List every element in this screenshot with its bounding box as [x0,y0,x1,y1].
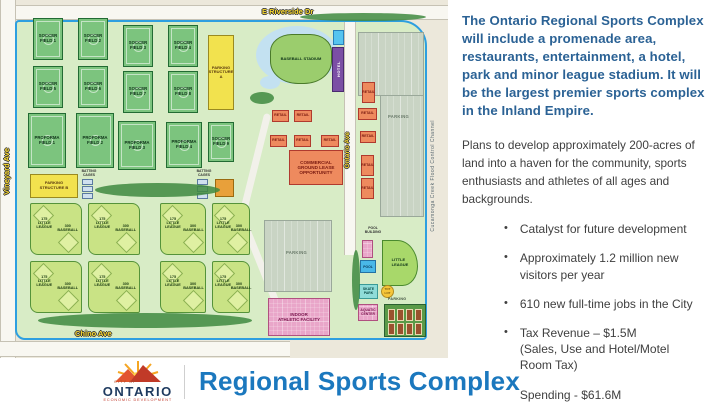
parking-label: PARKING [388,297,406,301]
retail-label: RETAIL [297,114,310,118]
little-league-baseball-block: 175 LITTLE LEAGUE300 BASEBALL [30,261,82,313]
little-league-baseball-block: 175 LITTLE LEAGUE300 BASEBALL [88,261,140,313]
baseball-stadium: BASEBALL STADIUM [270,34,332,84]
retail-label: RETAIL [362,135,375,139]
pool-label: POOL [363,265,373,269]
batting-cage [82,186,93,192]
baseball-label: 300 BASEBALL [183,282,203,290]
soccer-field-label: SOCCER FIELD 8 [174,87,192,97]
baseball-label: 300 BASEBALL [57,282,80,290]
proforma-field: PROFORMA FIELD 4 [166,122,202,168]
retail-pad: RETAIL [360,131,376,143]
bullet-dot: • [504,250,508,282]
proforma-field-label: PROFORMA FIELD 2 [82,136,107,146]
sport-court [406,323,413,335]
proforma-field: PROFORMA FIELD 3 [118,121,156,170]
soccer-field-label: SOCCER FIELD 4 [174,41,192,51]
baseball-label: 300 BASEBALL [231,282,247,290]
retail-label: RETAIL [272,139,285,143]
footer-bar: CITY OF ONTARIO ECONOMIC DEVELOPMENT Reg… [0,358,520,405]
soccer-field-label: SOCCER FIELD 9 [212,137,230,147]
bullet-dot: • [504,221,508,237]
tree-band [352,250,360,310]
little-league-baseball-block: 175 LITTLE LEAGUE300 BASEBALL [88,203,140,255]
baseball-label: 300 BASEBALL [115,224,138,232]
soccer-field-label: SOCCER FIELD 6 [84,82,102,92]
pool-building-label: POOL BUILDING [360,227,386,234]
intro-paragraph: Plans to develop approximately 200-acres… [462,137,712,208]
bullet-text: Tax Revenue – $1.5M (Sales, Use and Hote… [520,325,696,374]
hotel-label: HOTEL [336,61,341,77]
creek-channel-label: Cucamonga Creek Flood Control Channel [430,120,436,232]
little-league-label: 175 LITTLE LEAGUE [215,217,231,230]
sport-court [415,309,422,321]
retail-label: RETAIL [296,139,309,143]
baseball-label: 300 BASEBALL [57,224,80,232]
proforma-field-label: PROFORMA FIELD 4 [171,140,196,150]
logo-dept: ECONOMIC DEVELOPMENT [102,399,174,403]
bullet-text: Spending - $61.6M (net direct, indirect … [520,387,696,405]
street-label-ontario: Ontario Ave [344,132,351,168]
retail-pad: RETAIL [294,135,311,147]
proforma-field: PROFORMA FIELD 2 [76,113,114,168]
tot-lot-label: TOT LOT [385,288,391,294]
retail-label: RETAIL [362,91,375,95]
little-league-label: 175 LITTLE LEAGUE [33,217,56,230]
baseball-label: 300 BASEBALL [183,224,203,232]
skate-park-label: SKATE PARK [363,288,374,295]
proforma-field: PROFORMA FIELD 1 [28,113,66,168]
bullet-text: Catalyst for future development [520,221,696,237]
bullet-item: •Spending - $61.6M (net direct, indirect… [504,387,712,405]
soccer-field-label: SOCCER FIELD 5 [39,82,57,92]
retail-label: RETAIL [361,164,374,168]
street-label-vineyard: Vineyard Ave [2,148,11,195]
bullet-item: •Catalyst for future development [504,221,712,237]
soccer-field: SOCCER FIELD 7 [123,71,153,113]
baseball-label: 300 BASEBALL [115,282,138,290]
hotel: HOTEL [332,47,344,92]
indoor-athletic-facility: INDOOR ATHLETIC FACILITY [268,298,330,336]
batting-cage [82,193,93,199]
little-league-label: 175 LITTLE LEAGUE [91,217,114,230]
commercial-ground-lease: COMMERCIAL GROUND LEASE OPPORTUNITY [289,150,343,185]
sport-court [388,323,395,335]
sport-court [397,309,404,321]
parking-label: PARKING [388,114,409,119]
retail-pad: RETAIL [361,155,374,176]
baseball-label: 300 BASEBALL [231,224,247,232]
sport-court [397,323,404,335]
soccer-field-label: SOCCER FIELD 3 [129,41,147,51]
parking-structure-b-label: PARKING STRUCTURE B [40,181,69,190]
batting-cages-label: BATTING CAGES [193,170,215,177]
bullet-text: Approximately 1.2 million new visitors p… [520,250,696,282]
retail-pad: RETAIL [361,178,374,199]
retail-pad: RETAIL [358,108,377,120]
retail-pad: RETAIL [270,135,287,147]
little-league-baseball-block: 175 LITTLE LEAGUE300 BASEBALL [212,261,250,313]
aquatic-center: AQUATIC CENTER [358,304,378,321]
parking-structure-b: PARKING STRUCTURE B [30,174,78,198]
sport-court [388,309,395,321]
bullet-dot: • [504,296,508,312]
proforma-field-label: PROFORMA FIELD 1 [34,136,59,146]
bullet-item: •Approximately 1.2 million new visitors … [504,250,712,282]
little-league-label: 175 LITTLE LEAGUE [33,275,56,288]
street-label-chino: Chino Ave [75,329,112,338]
little-league-label: 175 LITTLE LEAGUE [163,275,183,288]
parking-label: PARKING [286,250,307,255]
bullet-list: •Catalyst for future development•Approxi… [504,221,712,405]
city-of-ontario-logo: CITY OF ONTARIO ECONOMIC DEVELOPMENT [102,360,174,403]
soccer-field: SOCCER FIELD 8 [168,71,198,113]
tree-band [300,13,426,21]
bullet-item: •Tax Revenue – $1.5M (Sales, Use and Hot… [504,325,712,374]
little-league-label: 175 LITTLE LEAGUE [91,275,114,288]
slide-title: Regional Sports Complex [199,366,520,397]
stadium-pond [260,76,280,89]
retail-pad: RETAIL [321,135,339,147]
parking-structure-a: PARKING STRUCTURE A [208,35,234,110]
retail-pad: RETAIL [272,110,289,122]
soccer-field: SOCCER FIELD 2 [78,18,108,60]
soccer-field: SOCCER FIELD 9 [208,122,234,162]
site-plan-map: BASEBALL STADIUM HOTEL PARKING COMMERCIA… [0,0,448,358]
little-league-baseball-block: 175 LITTLE LEAGUE300 BASEBALL [30,203,82,255]
sport-court [415,323,422,335]
logo-city-name: ONTARIO [102,385,174,398]
little-league-baseball-block: 175 LITTLE LEAGUE300 BASEBALL [160,203,206,255]
info-panel: The Ontario Regional Sports Complex will… [448,0,720,405]
batting-cages-label: BATTING CAGES [78,170,100,177]
soccer-field: SOCCER FIELD 4 [168,25,198,67]
soccer-field: SOCCER FIELD 1 [33,18,63,60]
retail-label: RETAIL [361,112,374,116]
aquatic-center-label: AQUATIC CENTER [360,309,375,317]
pool: POOL [360,260,376,273]
parking-lot-central [264,220,332,292]
retail-pad: RETAIL [294,110,312,122]
soccer-field-label: SOCCER FIELD 1 [39,34,57,44]
tree-band [250,92,274,104]
stadium-annex [333,30,344,45]
soccer-field: SOCCER FIELD 6 [78,66,108,108]
sport-court [406,309,413,321]
retail-label: RETAIL [324,139,337,143]
little-league-label: 175 LITTLE LEAGUE [215,275,231,288]
bullet-text: 610 new full-time jobs in the City [520,296,696,312]
retail-pad: RETAIL [362,82,375,103]
retail-label: RETAIL [274,114,287,118]
footer-divider [184,365,185,399]
pool-building [362,240,373,258]
commercial-label: COMMERCIAL GROUND LEASE OPPORTUNITY [297,160,334,175]
bullet-item: •610 new full-time jobs in the City [504,296,712,312]
baseball-stadium-label: BASEBALL STADIUM [281,57,322,62]
soccer-field: SOCCER FIELD 5 [33,66,63,108]
street-label-riverside: E Riverside Dr [262,7,313,16]
batting-cage [82,179,93,185]
little-league-label: 175 LITTLE LEAGUE [163,217,183,230]
slide: BASEBALL STADIUM HOTEL PARKING COMMERCIA… [0,0,720,405]
soccer-field-label: SOCCER FIELD 7 [129,87,147,97]
soccer-field-label: SOCCER FIELD 2 [84,34,102,44]
little-league-baseball-block: 175 LITTLE LEAGUE300 BASEBALL [160,261,206,313]
little-league-baseball-block: 175 LITTLE LEAGUE300 BASEBALL [212,203,250,255]
little-league-field-label: LITTLE LEAGUE [392,258,409,267]
proforma-field-label: PROFORMA FIELD 3 [124,141,149,151]
skate-park: SKATE PARK [359,284,378,299]
soccer-field: SOCCER FIELD 3 [123,25,153,67]
indoor-athletic-facility-label: INDOOR ATHLETIC FACILITY [278,312,320,322]
chino-road [0,341,290,357]
tree-band [95,183,220,197]
retail-label: RETAIL [361,187,374,191]
parking-structure-a-label: PARKING STRUCTURE A [209,66,234,80]
tree-band [38,313,252,328]
headline: The Ontario Regional Sports Complex will… [462,12,712,120]
